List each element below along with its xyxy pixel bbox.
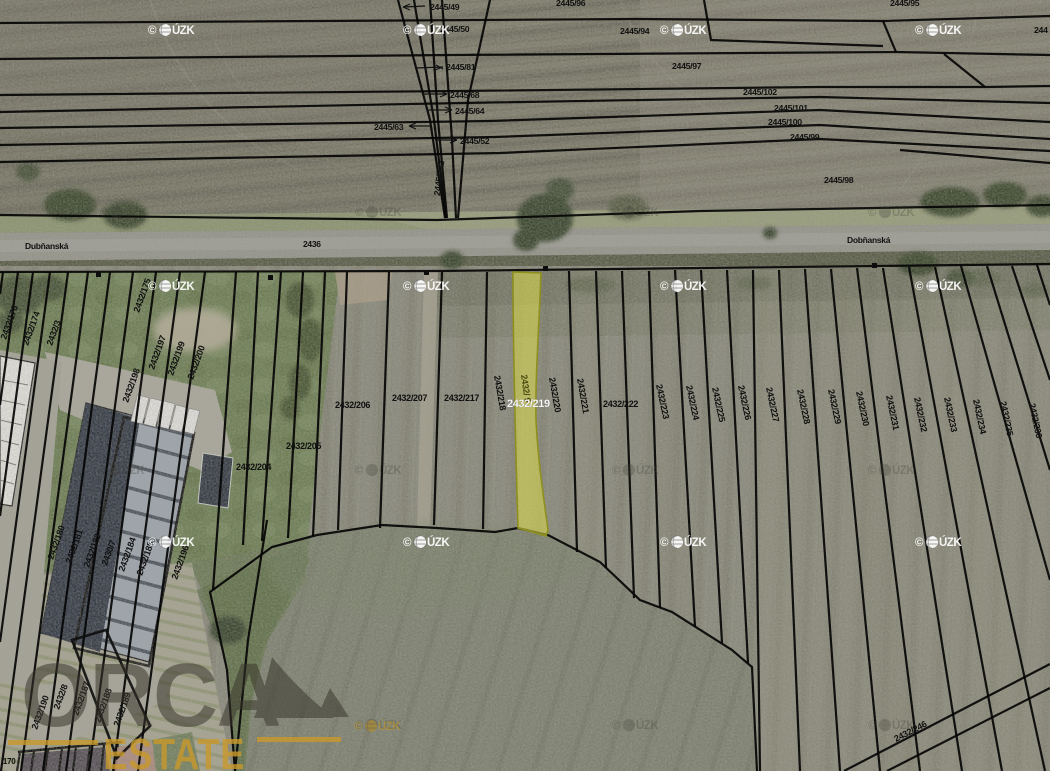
svg-text:Dubňanská: Dubňanská [25, 241, 69, 251]
svg-text:2436: 2436 [303, 239, 321, 249]
svg-text:2445/102: 2445/102 [743, 87, 777, 97]
svg-text:2445/99: 2445/99 [790, 132, 820, 142]
svg-text:2445/81: 2445/81 [446, 62, 476, 72]
svg-text:2445/68: 2445/68 [450, 90, 480, 100]
svg-text:Dobňanská: Dobňanská [847, 235, 891, 245]
svg-text:/170: /170 [1, 757, 16, 766]
svg-text:2432/222: 2432/222 [603, 399, 638, 409]
svg-text:2432/207: 2432/207 [392, 393, 427, 403]
svg-text:2445/49: 2445/49 [430, 2, 460, 12]
svg-text:2445/63: 2445/63 [374, 122, 404, 132]
svg-text:2445/96: 2445/96 [556, 0, 586, 8]
svg-text:ESTATE: ESTATE [103, 730, 245, 771]
svg-text:2445/98: 2445/98 [824, 175, 854, 185]
svg-text:2432/204: 2432/204 [236, 462, 271, 472]
svg-text:244: 244 [1034, 25, 1048, 35]
svg-text:2432/219: 2432/219 [507, 398, 550, 410]
svg-text:2445/100: 2445/100 [768, 117, 802, 127]
svg-text:2432/205: 2432/205 [286, 441, 321, 451]
svg-text:2445/97: 2445/97 [672, 61, 702, 71]
svg-text:2445/94: 2445/94 [620, 26, 650, 36]
svg-text:2432/217: 2432/217 [444, 393, 479, 403]
svg-text:2445/64: 2445/64 [455, 106, 485, 116]
svg-text:2432/206: 2432/206 [335, 400, 370, 410]
svg-text:2445/101: 2445/101 [774, 103, 808, 113]
svg-text:2445/52: 2445/52 [460, 136, 490, 146]
svg-text:2445/95: 2445/95 [890, 0, 920, 8]
